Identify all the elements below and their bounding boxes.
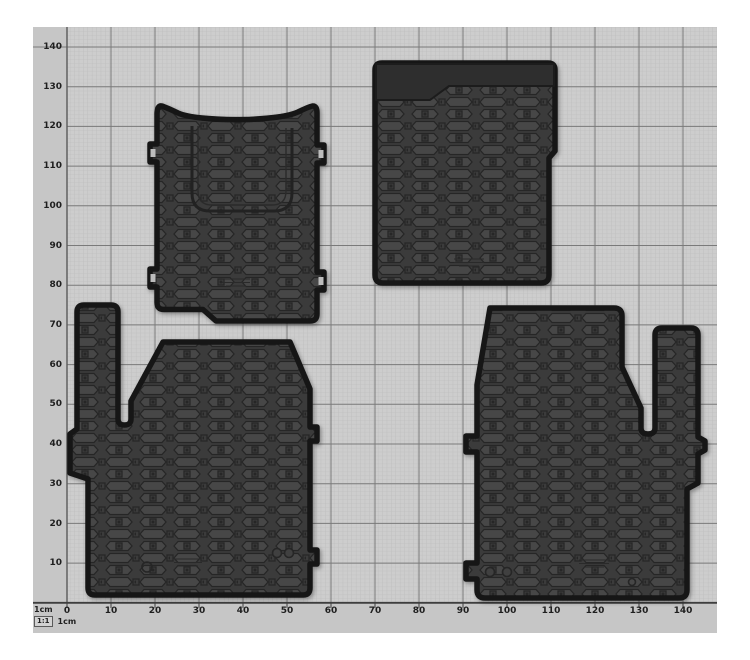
- y-axis-label: 80: [34, 280, 62, 290]
- x-axis-label: 60: [317, 606, 345, 616]
- y-axis-label: 30: [34, 479, 62, 489]
- y-axis-label: 130: [34, 82, 62, 92]
- scale-legend: 1cm 1:1 1cm: [34, 605, 76, 627]
- scale-unit-bottom: 1cm: [58, 617, 77, 626]
- passenger-mat-outline: [466, 308, 705, 598]
- x-axis-label: 20: [141, 606, 169, 616]
- floor-mat-boot: [375, 63, 555, 283]
- x-axis-label: 70: [361, 606, 389, 616]
- x-axis-label: 100: [493, 606, 521, 616]
- x-axis-label: 110: [537, 606, 565, 616]
- y-axis-label: 100: [34, 201, 62, 211]
- scale-ratio-badge: 1:1: [34, 616, 53, 627]
- rear-mat-outline: [150, 106, 324, 321]
- y-axis-label: 40: [34, 439, 62, 449]
- x-axis-label: 10: [97, 606, 125, 616]
- x-axis-label: 50: [273, 606, 301, 616]
- y-axis-label: 70: [34, 320, 62, 330]
- product-photo-canvas: 140130120110100908070605040302010 010203…: [0, 0, 750, 660]
- y-axis-label: 120: [34, 121, 62, 131]
- y-axis-label: 140: [34, 42, 62, 52]
- measurement-scene: [0, 0, 750, 660]
- floor-mat-rear: [150, 106, 324, 321]
- x-axis-label: 30: [185, 606, 213, 616]
- x-axis-label: 140: [669, 606, 697, 616]
- x-axis-label: 90: [449, 606, 477, 616]
- y-axis-label: 60: [34, 360, 62, 370]
- x-axis-label: 120: [581, 606, 609, 616]
- x-axis-label: 40: [229, 606, 257, 616]
- floor-mat-front-driver: [70, 305, 317, 595]
- y-axis-label: 110: [34, 161, 62, 171]
- y-axis-label: 10: [34, 558, 62, 568]
- y-axis-label: 20: [34, 519, 62, 529]
- y-axis-label: 50: [34, 399, 62, 409]
- scale-unit-top: 1cm: [34, 605, 76, 614]
- floor-mat-front-passenger: [466, 308, 705, 598]
- x-axis-label: 130: [625, 606, 653, 616]
- y-axis-label: 90: [34, 241, 62, 251]
- x-axis-label: 80: [405, 606, 433, 616]
